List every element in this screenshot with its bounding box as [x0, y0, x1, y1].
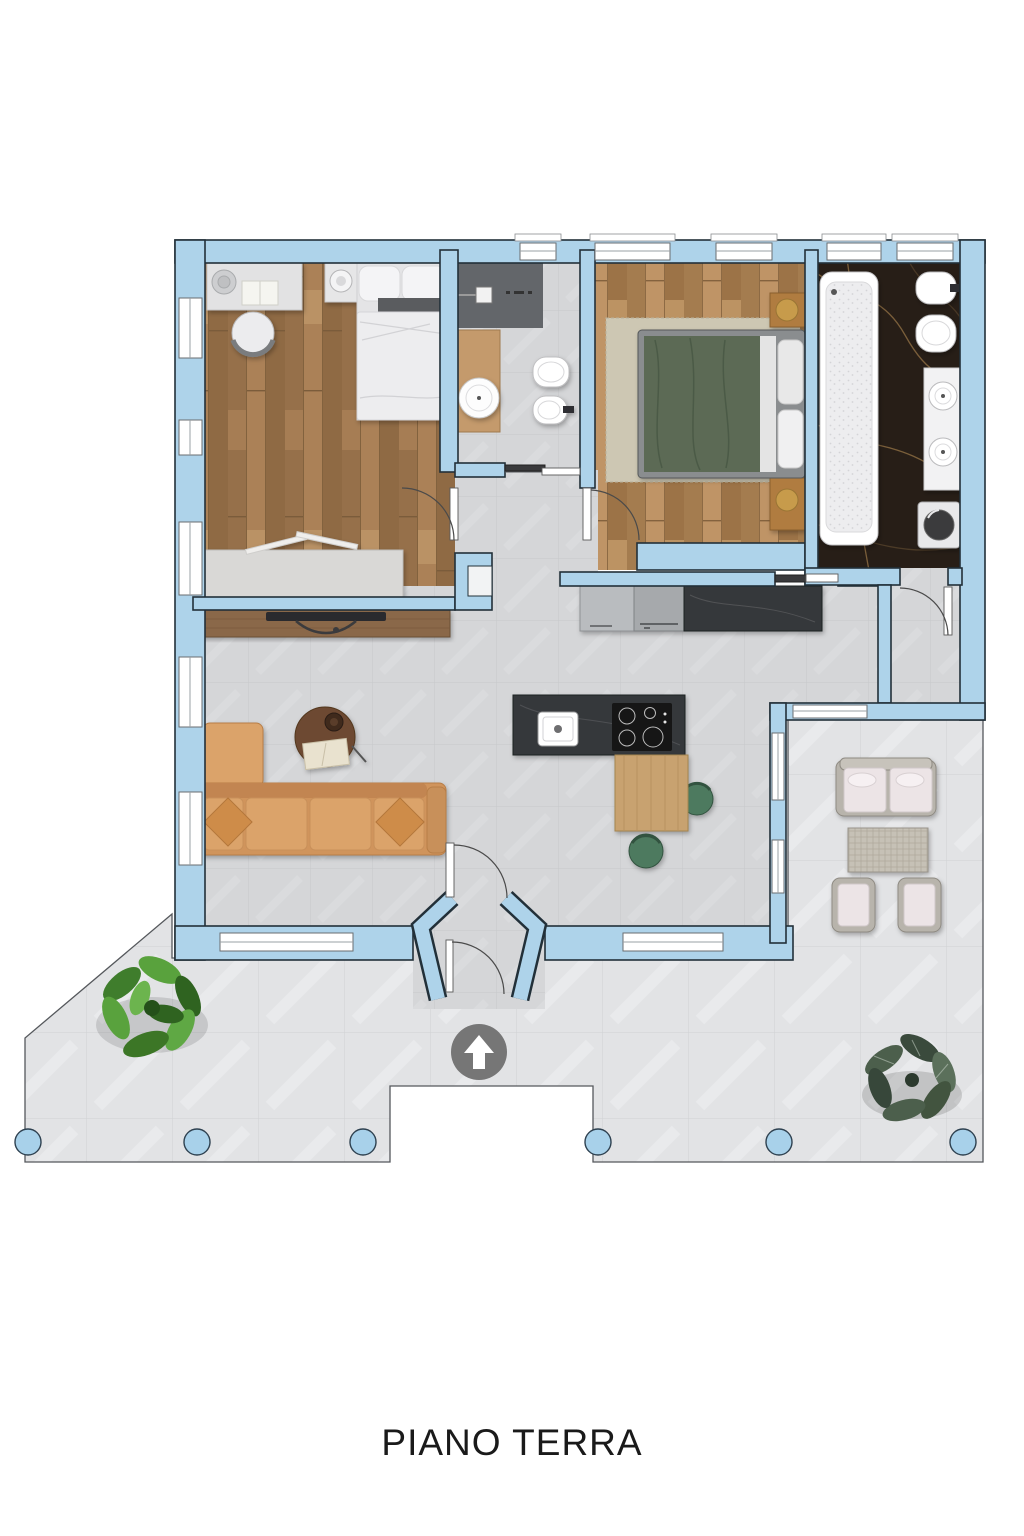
wardrobe [197, 550, 403, 597]
double-bed-green [638, 330, 805, 478]
inner-hall-west-wall [878, 585, 891, 703]
fridge [580, 586, 634, 631]
pillow [778, 410, 803, 468]
outdoor-armchair [832, 878, 875, 932]
pillow [778, 340, 803, 404]
bathroom-1-south-wall [455, 463, 505, 477]
kitchen-island [513, 695, 685, 755]
tv-sideboard [197, 610, 450, 637]
floor-plan-svg: PIANO TERRA [0, 0, 1024, 1536]
bathroom-2-west-wall [805, 250, 818, 585]
floor-title: PIANO TERRA [381, 1422, 642, 1463]
kitchen-counter [580, 586, 822, 631]
armrest [427, 787, 446, 853]
outdoor-table [848, 828, 928, 872]
double-bed [357, 260, 450, 420]
bidet-tap [950, 284, 959, 292]
bidet-tap [563, 406, 574, 413]
right-wall [960, 240, 985, 720]
floor-plan-page: PIANO TERRA [0, 0, 1024, 1536]
bath-drain [831, 289, 837, 295]
entrance-arrow-badge [451, 1024, 507, 1080]
bedroom-1-south-wall [193, 597, 455, 610]
outdoor-sofa [836, 758, 936, 816]
washing-machine-door [924, 510, 954, 540]
gold-lamp [776, 489, 798, 511]
outdoor-armchair [898, 878, 941, 932]
kitchen-wall-left [560, 572, 775, 586]
bedroom-2-south-wall [637, 543, 805, 570]
pillow [359, 266, 400, 301]
stone-counter [684, 586, 822, 631]
chaise-cushion [203, 723, 263, 787]
bedroom-2-west-wall [580, 250, 595, 488]
tv [266, 612, 386, 621]
gold-lamp [776, 299, 798, 321]
kitchen-sliding-door [775, 574, 838, 582]
bedroom-1-east-wall [440, 250, 458, 472]
shower-head [476, 287, 492, 303]
